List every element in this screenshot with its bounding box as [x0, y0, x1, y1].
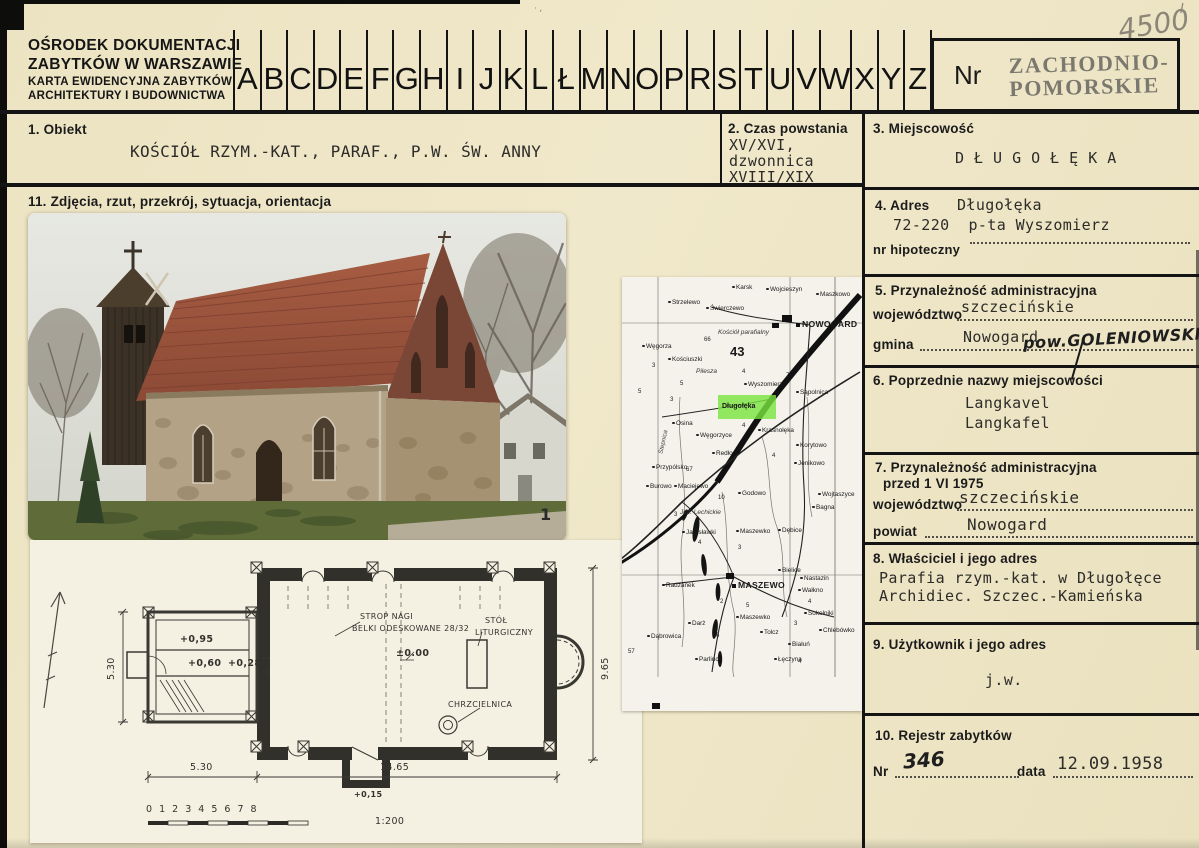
- map-place-label: 43: [730, 345, 744, 358]
- plan-dim-left: 5.30: [106, 657, 117, 680]
- field10-date-value: 12.09.1958: [1057, 754, 1163, 774]
- map-place-label: 3: [652, 363, 655, 369]
- map-place-label: 57: [628, 649, 635, 655]
- map-place-label: Kościuszki: [668, 357, 702, 363]
- map-place-label: Burowo: [646, 484, 672, 490]
- church-photo-art: [28, 213, 566, 540]
- scan-edge-corner: [0, 0, 24, 30]
- field4: 4. Adres Długołęka 72-220 p-ta Wyszomier…: [865, 190, 1199, 277]
- field4-value-2: 72-220 p-ta Wyszomierz: [893, 216, 1110, 234]
- alphabet-letter-cell: L: [525, 30, 552, 113]
- map-place-label: Jez. Lechickie: [680, 510, 721, 517]
- map-place-label: Białuń: [788, 642, 810, 648]
- alphabet-letter: P: [663, 61, 684, 97]
- voivodeship-stamp: ZACHODNIO- POMORSKIE: [1009, 50, 1171, 100]
- field1-value: KOŚCIÓŁ RZYM.-KAT., PARAF., P.W. ŚW. ANN…: [130, 142, 541, 161]
- field3: 3. Miejscowość DŁUGOŁĘKA: [865, 113, 1199, 190]
- map-place-label: 3: [670, 397, 673, 403]
- alphabet-letter: H: [422, 61, 444, 97]
- alphabet-letter-cell: J: [472, 30, 499, 113]
- field5-row2-label: gmina: [873, 337, 914, 352]
- field5-row1-label: województwo: [873, 307, 962, 322]
- alphabet-letter: X: [854, 61, 875, 97]
- map-place-label: Przypólsko: [652, 465, 687, 471]
- alphabet-letter-cell: F: [366, 30, 393, 113]
- scan-edge-left: [0, 0, 7, 848]
- alphabet-letter-cell: B: [260, 30, 287, 113]
- map-place-label: 6: [716, 633, 719, 639]
- field7-row1-dotted: [957, 509, 1193, 511]
- field10-date-dotted: [1053, 776, 1193, 778]
- map-place-label: Karsk: [732, 285, 752, 291]
- alphabet-letter: G: [395, 61, 419, 97]
- map-place-label: 3: [794, 621, 797, 627]
- map-place-label: 5: [680, 381, 683, 387]
- org-line-1: OŚRODEK DOKUMENTACJI: [28, 36, 243, 55]
- alphabet-letter-cell: I: [446, 30, 473, 113]
- map-place-label: MASZEWO: [732, 581, 785, 590]
- map-place-label: Węgorza: [642, 344, 672, 350]
- field3-value: DŁUGOŁĘKA: [955, 149, 1126, 167]
- alphabet-letter-cell: U: [766, 30, 793, 113]
- field9: 9. Użytkownik i jego adres j.w.: [865, 625, 1199, 716]
- field7-row2-value: Nowogard: [967, 515, 1047, 534]
- map-place-label: Jenikowo: [794, 461, 825, 467]
- alphabet-letter-cell: E: [339, 30, 366, 113]
- field5-row1-dotted: [957, 319, 1193, 321]
- field8-value-1: Parafia rzym.-kat. w Długołęce: [879, 569, 1162, 587]
- alphabet-letter: S: [717, 61, 738, 97]
- alphabet-letter: R: [689, 61, 711, 97]
- alphabet-letter: Z: [908, 61, 927, 97]
- map-place-label: Kościół parafialny: [718, 330, 769, 337]
- plan-level-mid: +0,60: [188, 658, 221, 669]
- field11-label: 11. Zdjęcia, rzut, przekrój, sytuacja, o…: [28, 194, 331, 209]
- alphabet-letter: K: [503, 61, 524, 97]
- alphabet-letter: I: [456, 61, 465, 97]
- heritage-record-card: · , OŚRODEK DOKUMENTACJI ZABYTKÓW W WARS…: [0, 0, 1199, 848]
- alphabet-letter: F: [371, 61, 390, 97]
- situation-map-paper: Długołęka KarskWojcieszynMaszkowoStrzele…: [622, 277, 862, 711]
- map-place-label: 67: [686, 467, 693, 473]
- field4-label: 4. Adres: [875, 198, 929, 213]
- alphabet-letter: A: [237, 61, 258, 97]
- alphabet-letter-cell: D: [313, 30, 340, 113]
- map-place-label: Maszkowo: [816, 292, 850, 298]
- map-place-label: Sokolniki: [804, 611, 834, 617]
- plan-dim-bottom-right: 14.65: [380, 762, 409, 773]
- row1-divider: [720, 114, 722, 184]
- nr-label: Nr: [954, 60, 981, 91]
- map-place-label: 3: [738, 545, 741, 551]
- field8-label: 8. Właściciel i jego adres: [873, 551, 1037, 566]
- nr-box: Nr ZACHODNIO- POMORSKIE: [931, 38, 1180, 112]
- alphabet-letter-cell: M: [579, 30, 607, 113]
- photo-number-mark: 1: [540, 505, 551, 524]
- map-place-label: Stepnica: [659, 430, 670, 455]
- pencil-mark-top: · ,: [534, 4, 543, 14]
- plan-dim-bottom-left: 5.30: [190, 762, 213, 773]
- alphabet-letter: N: [609, 61, 631, 97]
- map-place-label: NOWOGARD: [796, 320, 857, 329]
- field10: 10. Rejestr zabytków Nr 346 data 12.09.1…: [865, 716, 1199, 848]
- alphabet-letter-cell: Y: [877, 30, 904, 113]
- map-place-label: Wyszomierz: [744, 382, 783, 388]
- map-place-label: Maciejewo: [674, 484, 708, 490]
- map-place-label: Jarosławki: [682, 530, 716, 536]
- map-place-label: Wojcieszyn: [766, 287, 802, 293]
- map-place-label: Węgorzyce: [696, 433, 732, 439]
- church-photo: [28, 213, 566, 540]
- map-place-label: Bielice: [778, 568, 801, 574]
- map-place-label: Pilesza: [696, 369, 717, 376]
- map-place-label: 4: [742, 369, 745, 375]
- org-block: OŚRODEK DOKUMENTACJI ZABYTKÓW W WARSZAWI…: [28, 36, 243, 104]
- map-place-label: 4: [772, 453, 775, 459]
- alphabet-letter-cell: X: [850, 30, 877, 113]
- field5-label: 5. Przynależność administracyjna: [875, 283, 1097, 298]
- field7-label: 7. Przynależność administracyjna: [875, 460, 1097, 475]
- alphabet-letter: Ł: [558, 61, 575, 97]
- field9-label: 9. Użytkownik i jego adres: [873, 637, 1046, 652]
- field5: 5. Przynależność administracyjna wojewód…: [865, 277, 1199, 368]
- map-place-label: Osina: [672, 421, 693, 427]
- map-place-label: Świerczewo: [706, 306, 744, 312]
- alphabet-letter-cell: S: [713, 30, 740, 113]
- map-place-label: Tolcz: [760, 630, 779, 636]
- map-place-label: Maszewko: [736, 615, 770, 621]
- plan-scale-ratio: 1:200: [375, 816, 404, 827]
- map-place-label: Strzelewo: [668, 300, 700, 306]
- map-place-label: 4: [798, 659, 801, 665]
- alphabet-letter: D: [316, 61, 338, 97]
- plan-stol-2: LITURGICZNY: [475, 628, 533, 637]
- field7-row1-label: województwo: [873, 497, 962, 512]
- alphabet-letter: C: [289, 61, 311, 97]
- alphabet-letter-cell: T: [739, 30, 766, 113]
- plan-chrzcielnica: CHRZCIELNICA: [448, 700, 512, 709]
- map-place-label: Korytowo: [796, 443, 827, 449]
- map-place-label: Chlebówko: [819, 628, 855, 634]
- field10-label: 10. Rejestr zabytków: [875, 728, 1012, 743]
- alphabet-letter-cell: V: [792, 30, 819, 113]
- floor-plan-drawing: [30, 540, 642, 843]
- alphabet-letter-cell: R: [686, 30, 713, 113]
- org-line-3: KARTA EWIDENCYJNA ZABYTKÓW: [28, 75, 243, 89]
- map-place-label: Bagna: [812, 505, 834, 511]
- stamp-line-2: POMORSKIE: [1009, 73, 1170, 100]
- map-place-label: 3: [674, 512, 677, 518]
- alphabet-letter-cell: Ł: [552, 30, 579, 113]
- field10-nr-label: Nr: [873, 764, 888, 779]
- handwritten-mark: I.: [1180, 2, 1188, 17]
- map-place-label: Dąbrowica: [647, 634, 681, 640]
- map-place-label: Sąpolnica: [796, 390, 828, 396]
- alphabet-letter: W: [821, 61, 850, 97]
- plan-level-low: +0,28: [228, 658, 261, 669]
- org-line-4: ARCHITEKTURY I BUDOWNICTWA: [28, 89, 243, 103]
- field6-label: 6. Poprzednie nazwy miejscowości: [873, 373, 1103, 388]
- map-place-label: Nastazin: [800, 576, 829, 582]
- map-place-label: Wojtaszyce: [818, 492, 855, 498]
- alphabet-letter: L: [531, 61, 548, 97]
- map-place-label: Krasnołęka: [758, 428, 794, 434]
- alphabet-letter-cell: A: [233, 30, 260, 113]
- map-place-label: 5: [746, 603, 749, 609]
- field7-row2-dotted: [925, 536, 1193, 538]
- field6-value-1: Langkavel: [965, 394, 1050, 412]
- field4-value-1: Długołęka: [957, 196, 1042, 214]
- alphabet-letter: M: [581, 61, 607, 97]
- alphabet-letter-cell: N: [606, 30, 633, 113]
- alphabet-letter-cell: P: [660, 30, 687, 113]
- map-place-label: Radzanek: [662, 583, 695, 589]
- floor-plan-paper: 5.30 +0,95 +0,60 +0,28 STROP NAGI BELKI …: [30, 540, 642, 843]
- alphabet-letter-cell: K: [499, 30, 526, 113]
- alphabet-letter: Y: [881, 61, 902, 97]
- map-place-label: 7: [786, 373, 789, 379]
- alphabet-letter: V: [796, 61, 817, 97]
- field2-label: 2. Czas powstania: [728, 121, 848, 136]
- alphabet-letter-cell: Z: [903, 30, 932, 113]
- field10-nr-dotted: [895, 776, 1019, 778]
- field6: 6. Poprzednie nazwy miejscowości Langkav…: [865, 368, 1199, 455]
- field7-row2-label: powiat: [873, 524, 917, 539]
- map-place-label: Maszewko: [736, 529, 770, 535]
- field8-value-2: Archidiec. Szczec.-Kamieńska: [879, 587, 1143, 605]
- plan-zero-level: ±0.00: [396, 648, 429, 659]
- field4-sub-label: nr hipoteczny: [873, 242, 960, 257]
- map-place-label: 2: [720, 599, 723, 605]
- field7: 7. Przynależność administracyjna przed 1…: [865, 455, 1199, 545]
- plan-strop-2: BELKI ODESKOWANE 28/32: [352, 624, 469, 633]
- scan-edge-top: [0, 0, 520, 4]
- field10-date-label: data: [1017, 764, 1046, 779]
- field9-value: j.w.: [985, 671, 1023, 689]
- field10-nr-value: 346: [902, 747, 945, 774]
- map-place-label: Dębice: [778, 528, 802, 534]
- plan-level-porch: +0,15: [354, 790, 382, 799]
- alphabet-letter-cell: O: [633, 30, 660, 113]
- alphabet-letter-cell: G: [392, 30, 419, 113]
- map-place-label: 4: [698, 540, 701, 546]
- alphabet-strip: ABCDEFGHIJKLŁMNOPRSTUVWXYZ: [233, 30, 932, 113]
- alphabet-letter-cell: H: [419, 30, 446, 113]
- alphabet-letter: O: [635, 61, 659, 97]
- map-place-label: Godowo: [738, 491, 766, 497]
- field8: 8. Właściciel i jego adres Parafia rzym.…: [865, 545, 1199, 625]
- field6-value-2: Langkafel: [965, 414, 1050, 432]
- field7-row1-value: szczecińskie: [959, 488, 1079, 507]
- map-place-label: 5: [638, 389, 641, 395]
- map-place-label: 66: [704, 337, 711, 343]
- map-place-label: 4: [808, 599, 811, 605]
- map-place-label: Darż: [688, 621, 706, 627]
- alphabet-letter: J: [479, 61, 495, 97]
- map-place-label: Wałkno: [798, 588, 823, 594]
- map-place-label: 4: [742, 423, 745, 429]
- alphabet-letter-cell: C: [286, 30, 313, 113]
- field1-label: 1. Obiekt: [28, 122, 87, 137]
- alphabet-letter: U: [769, 61, 791, 97]
- map-place-label: 10: [718, 495, 725, 501]
- plan-dim-right: 9.65: [600, 657, 611, 680]
- org-line-2: ZABYTKÓW W WARSZAWIE: [28, 55, 243, 74]
- map-place-label: Redło: [712, 451, 733, 457]
- row1-bottom-border: [0, 183, 863, 187]
- plan-scale-numbers: 0 1 2 3 4 5 6 7 8: [146, 804, 259, 815]
- plan-strop-1: STROP NAGI: [360, 612, 413, 621]
- plan-level-top: +0,95: [180, 634, 213, 645]
- alphabet-letter: B: [264, 61, 285, 97]
- field4-dotted-line: [970, 242, 1190, 244]
- alphabet-letter-cell: W: [819, 30, 850, 113]
- alphabet-letter: E: [343, 61, 364, 97]
- field5-row1-value: szczecińskie: [961, 298, 1074, 316]
- map-place-label: Parlino: [695, 657, 719, 663]
- plan-stol-1: STÓŁ: [485, 616, 507, 625]
- field3-label: 3. Miejscowość: [873, 121, 974, 136]
- map-labels-layer: KarskWojcieszynMaszkowoStrzelewoŚwiercze…: [622, 277, 862, 711]
- alphabet-letter: T: [744, 61, 763, 97]
